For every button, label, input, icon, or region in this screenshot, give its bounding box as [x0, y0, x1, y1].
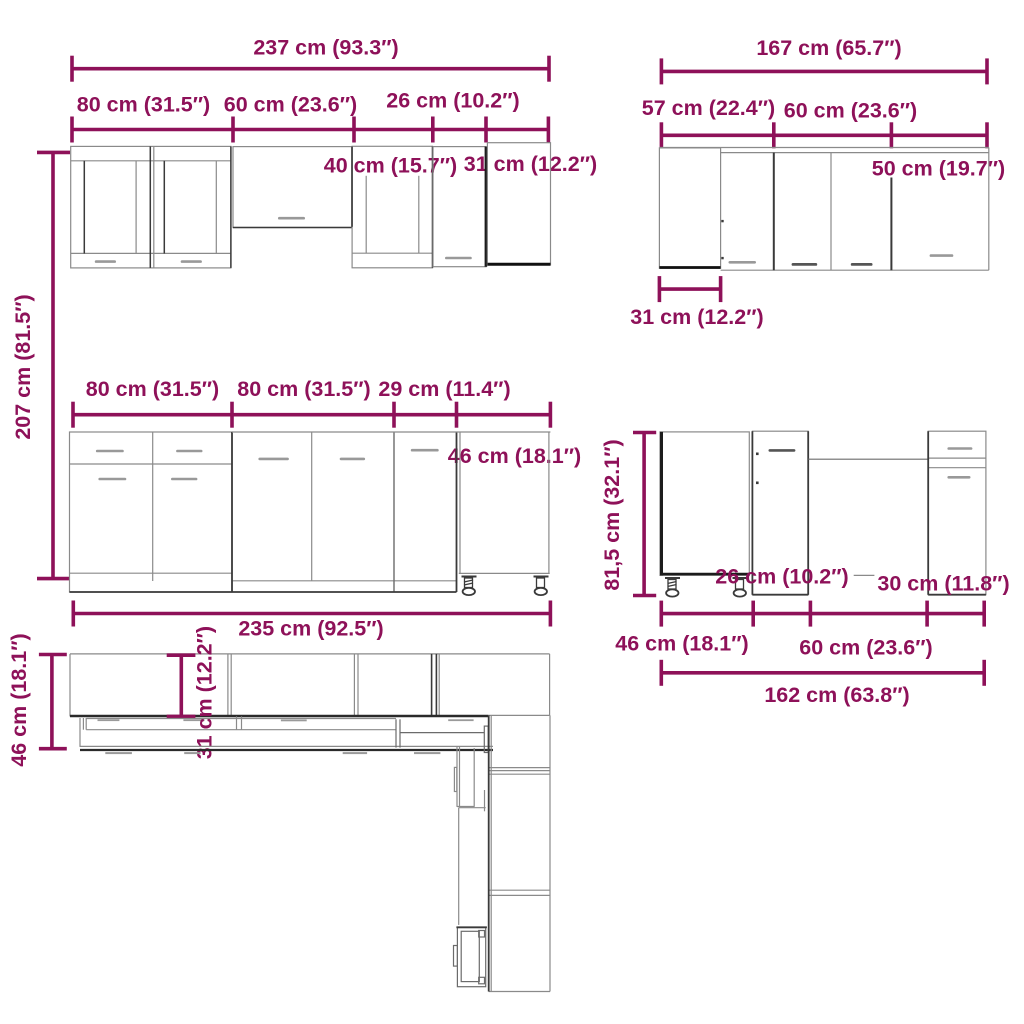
svg-text:80 cm (31.5″): 80 cm (31.5″) — [86, 377, 219, 401]
svg-text:30 cm (11.8″): 30 cm (11.8″) — [877, 572, 1009, 596]
svg-text:31 cm (12.2″): 31 cm (12.2″) — [630, 305, 763, 329]
svg-text:167 cm (65.7″): 167 cm (65.7″) — [756, 36, 901, 60]
svg-text:60 cm (23.6″): 60 cm (23.6″) — [224, 93, 357, 117]
svg-text:80 cm (31.5″): 80 cm (31.5″) — [77, 93, 210, 117]
svg-text:207 cm (81.5″): 207 cm (81.5″) — [11, 294, 35, 439]
svg-text:46 cm (18.1″): 46 cm (18.1″) — [448, 444, 581, 468]
svg-text:60 cm (23.6″): 60 cm (23.6″) — [799, 636, 932, 660]
svg-text:46 cm (18.1″): 46 cm (18.1″) — [615, 632, 748, 656]
svg-text:26 cm (10.2″): 26 cm (10.2″) — [386, 89, 519, 113]
svg-text:31 cm (12.2″): 31 cm (12.2″) — [464, 152, 597, 176]
svg-text:162 cm (63.8″): 162 cm (63.8″) — [764, 683, 909, 707]
svg-text:80 cm (31.5″): 80 cm (31.5″) — [237, 377, 370, 401]
svg-text:237 cm (93.3″): 237 cm (93.3″) — [253, 36, 398, 60]
svg-text:57 cm (22.4″): 57 cm (22.4″) — [642, 96, 775, 120]
svg-text:81,5 cm (32.1″): 81,5 cm (32.1″) — [600, 439, 624, 590]
svg-text:50 cm (19.7″): 50 cm (19.7″) — [872, 157, 1005, 181]
svg-text:40 cm (15.7″): 40 cm (15.7″) — [324, 154, 457, 178]
svg-text:31 cm (12.2″): 31 cm (12.2″) — [193, 626, 217, 759]
svg-text:235 cm (92.5″): 235 cm (92.5″) — [238, 617, 383, 641]
svg-text:60 cm (23.6″): 60 cm (23.6″) — [784, 99, 917, 123]
svg-text:29 cm (11.4″): 29 cm (11.4″) — [378, 377, 510, 401]
svg-text:46 cm (18.1″): 46 cm (18.1″) — [7, 633, 31, 766]
svg-text:26 cm (10.2″): 26 cm (10.2″) — [715, 565, 848, 589]
